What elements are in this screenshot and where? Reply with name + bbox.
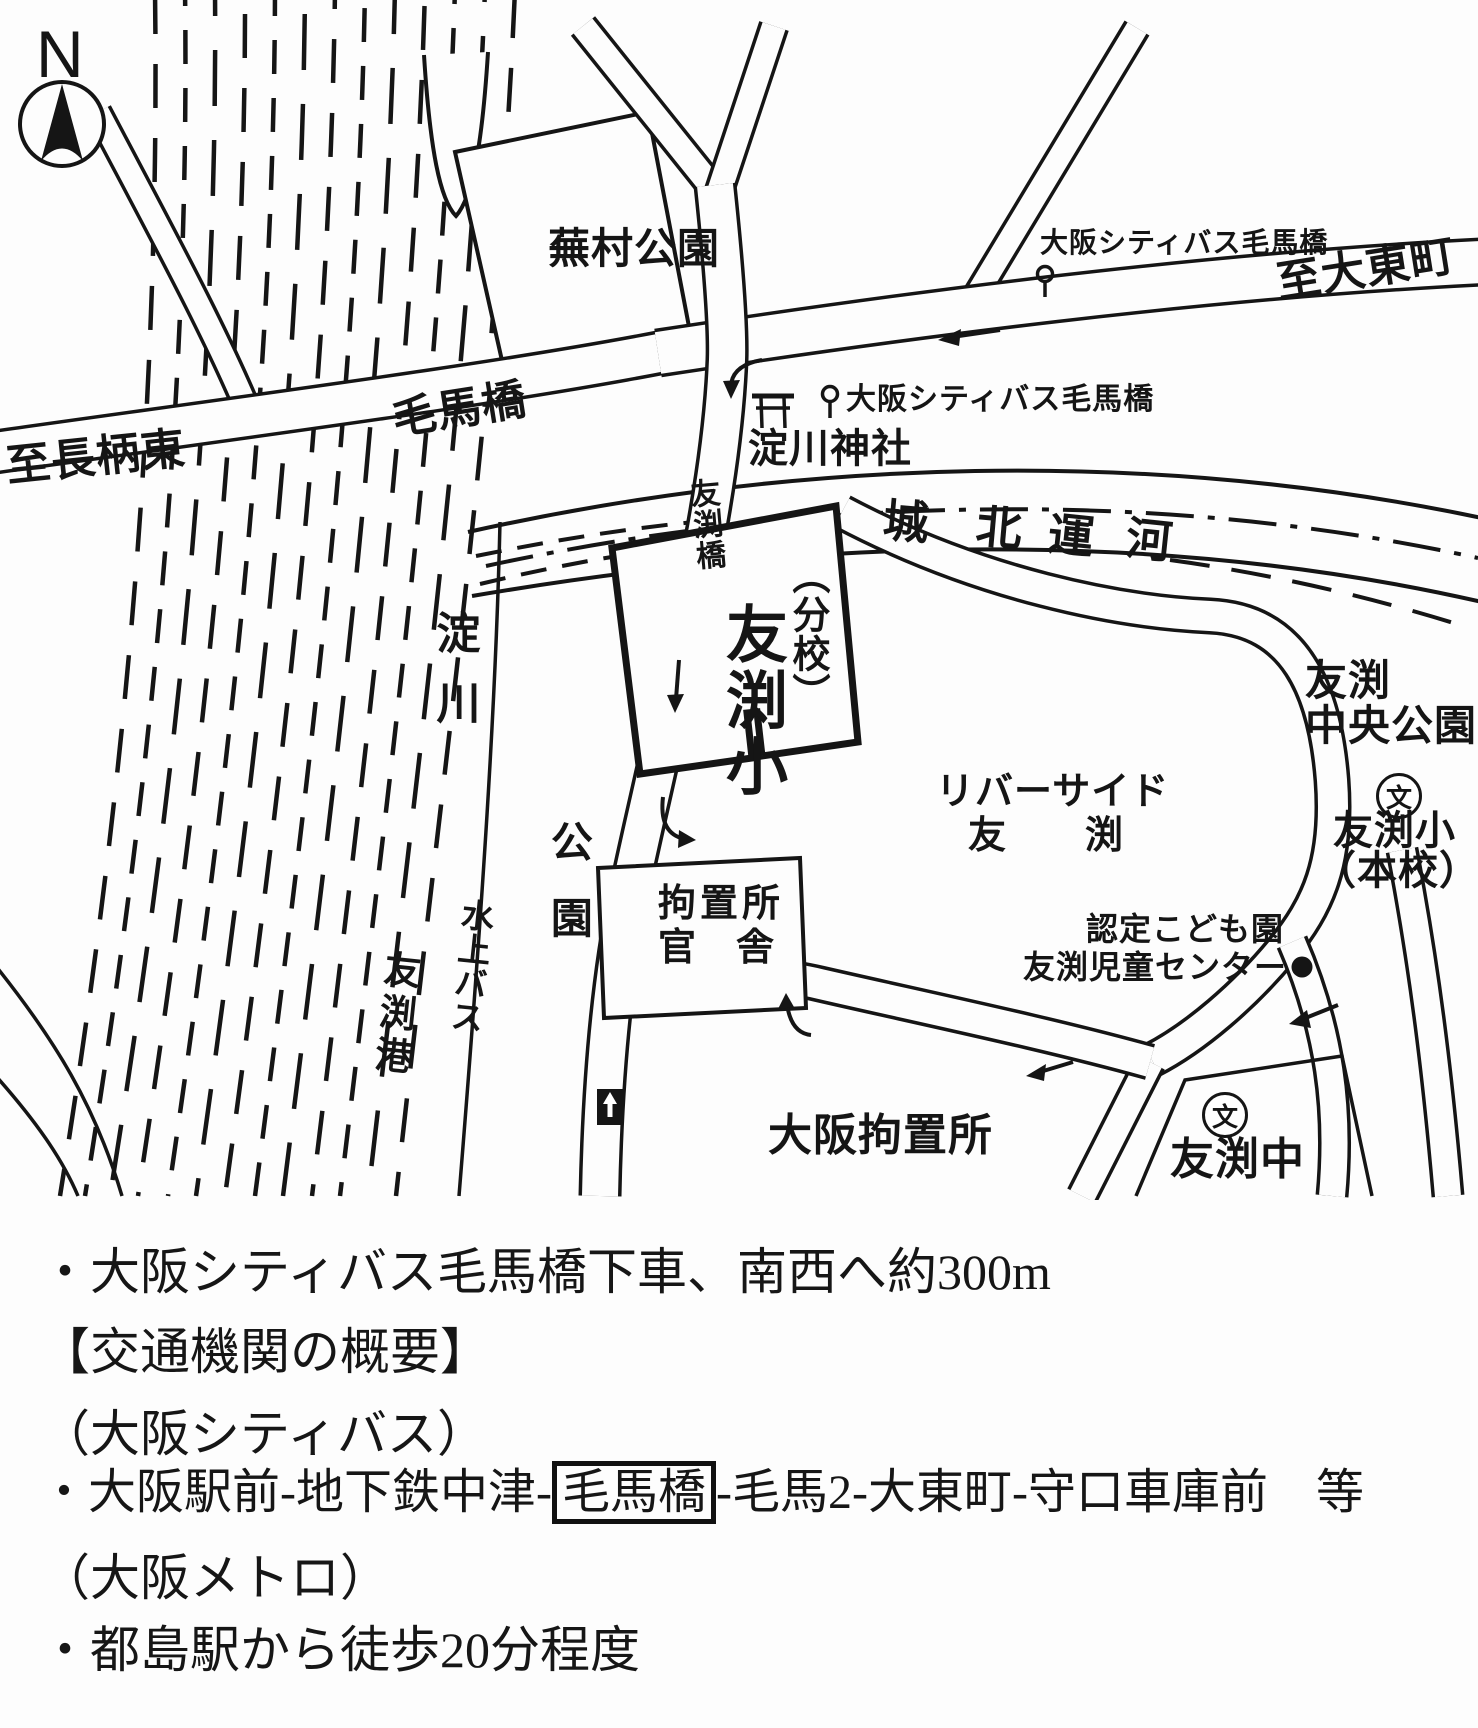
note-bus-route-post: -毛馬2-大東町-守口車庫前 等 [716, 1466, 1364, 1519]
school-mark-icon-jhs: 文 [1202, 1092, 1248, 1138]
access-map-page: N 蕪村公園 大阪シティバス毛馬橋 至大東町 毛馬橋 至長柄東 大阪シティバス毛… [0, 0, 1478, 1728]
label-kodomoen-line2: 友渕児童センター [1023, 950, 1287, 985]
label-central-park-line2: 中央公園 [1305, 703, 1477, 748]
label-yodogawa-shrine: 淀川神社 [748, 428, 912, 471]
note-transport-heading: 【交通機関の概要】 [40, 1312, 490, 1384]
label-riverside-line2: 友 渕 [968, 816, 1124, 857]
label-park: 公園 [546, 820, 591, 972]
note-bus-route: ・大阪駅前-地下鉄中津-毛馬橋-毛馬2-大東町-守口車庫前 等 [40, 1452, 1364, 1522]
label-detention-housing-line2: 官 舎 [658, 928, 775, 969]
label-bus-stop-middle: 大阪シティバス毛馬橋 [846, 384, 1154, 416]
label-kodomoen-line1: 認定こども園 [1086, 912, 1284, 947]
bus-stop-icon-middle [823, 387, 838, 419]
label-detention-housing-line1: 拘置所 [658, 884, 784, 925]
label-canal-char-3: 運 [1046, 510, 1098, 564]
label-riverside-line1: リバーサイド [936, 772, 1169, 813]
label-osaka-detention: 大阪拘置所 [768, 1112, 993, 1160]
label-branch-school-paren: （分校） [786, 556, 827, 712]
note-walk-access: ・都島駅から徒歩20分程度 [40, 1610, 640, 1682]
compass-n-label: N [36, 16, 84, 92]
label-canal-char-4: 河 [1124, 514, 1176, 568]
one-way-sign-icon [597, 1089, 623, 1125]
map-line-art [0, 0, 1478, 1200]
note-bus-route-boxed-stop: 毛馬橋 [552, 1461, 716, 1524]
torii-icon [752, 396, 794, 428]
compass-icon [20, 82, 104, 166]
label-tomobuchi-jhs: 友渕中 [1170, 1136, 1305, 1184]
kodomoen-location-dot [1292, 957, 1313, 978]
label-canal-char-1: 城 [881, 496, 932, 550]
label-branch-school-name: 友渕小 [716, 602, 783, 800]
label-main-school-line1: 友渕小 [1333, 810, 1456, 853]
label-main-school-line2: （本校） [1316, 850, 1478, 893]
river-bank-lines [0, 522, 500, 1196]
label-bus-stop-top: 大阪シティバス毛馬橋 [1040, 228, 1328, 258]
note-metro-heading: （大阪メトロ） [40, 1538, 390, 1610]
label-yodo-river: 淀川 [430, 610, 478, 750]
school-mark-char: 文 [1212, 1097, 1238, 1134]
label-buson-park: 蕪村公園 [548, 226, 720, 271]
label-central-park-line1: 友渕 [1305, 658, 1391, 703]
note-bus-route-pre: ・大阪駅前-地下鉄中津- [40, 1466, 552, 1519]
note-bus-access: ・大阪シティバス毛馬橋下車、南西へ約300m [40, 1232, 1051, 1304]
label-canal-char-2: 北 [974, 502, 1025, 556]
